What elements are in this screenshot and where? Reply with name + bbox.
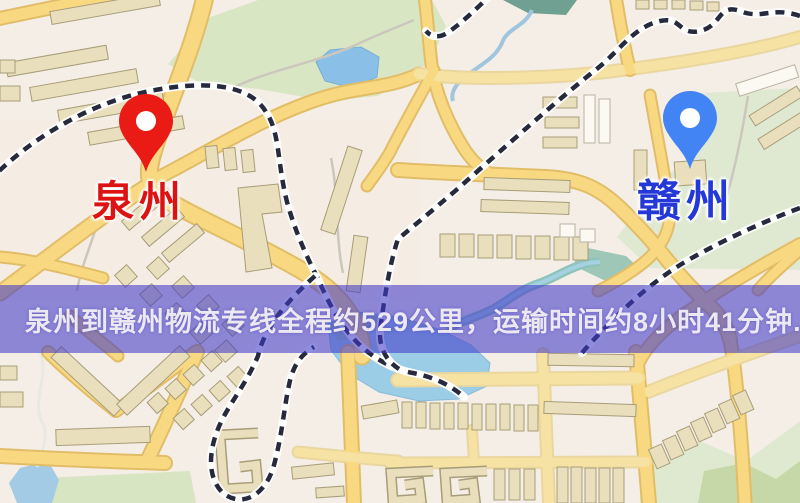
route-info-text: 泉州到赣州物流专线全程约529公里，运输时间约8小时41分钟. xyxy=(25,300,800,339)
map-view[interactable]: 泉州 赣州 泉州到赣州物流专线全程约529公里，运输时间约8小时41分钟. xyxy=(0,0,800,503)
map-canvas[interactable] xyxy=(0,0,800,503)
marker-label-quanzhou: 泉州 xyxy=(92,181,186,223)
marker-label-ganzhou: 赣州 xyxy=(637,180,735,224)
route-info-banner: 泉州到赣州物流专线全程约529公里，运输时间约8小时41分钟. xyxy=(0,285,800,353)
